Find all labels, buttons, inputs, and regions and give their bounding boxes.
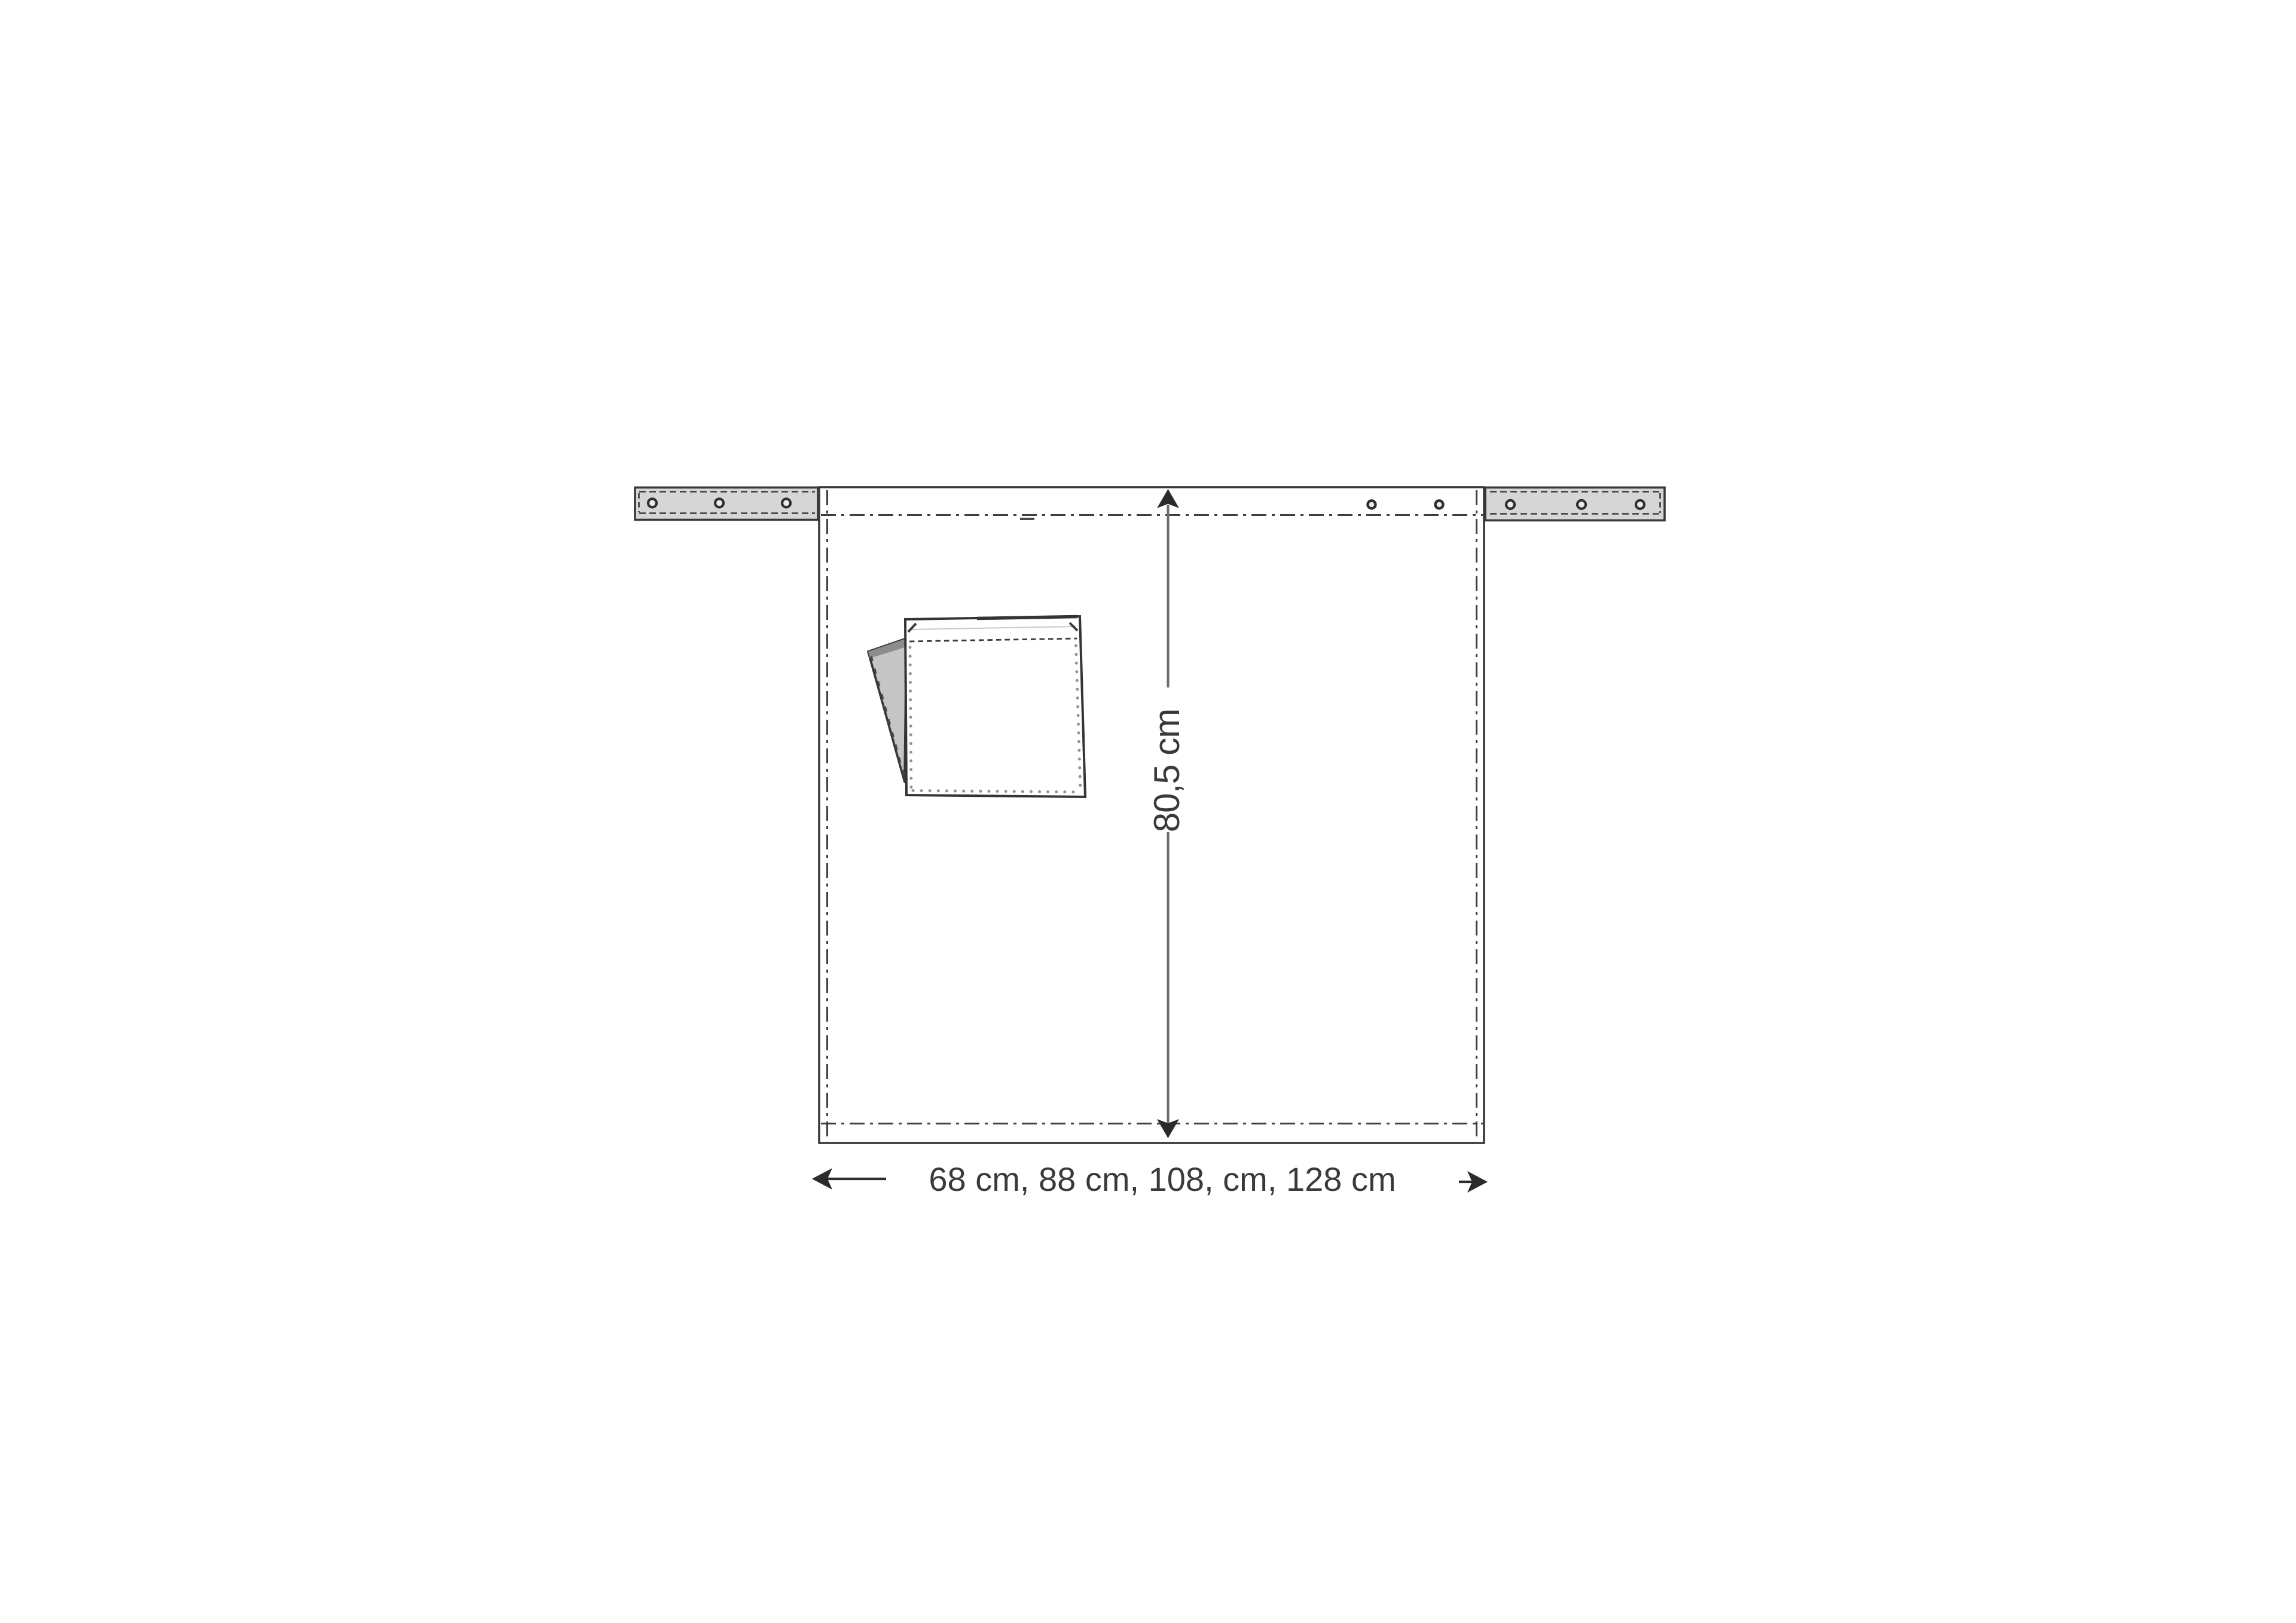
svg-text:68 cm, 88 cm, 108, cm, 128 cm: 68 cm, 88 cm, 108, cm, 128 cm (929, 1160, 1396, 1198)
svg-text:80,5 cm: 80,5 cm (1147, 709, 1187, 832)
